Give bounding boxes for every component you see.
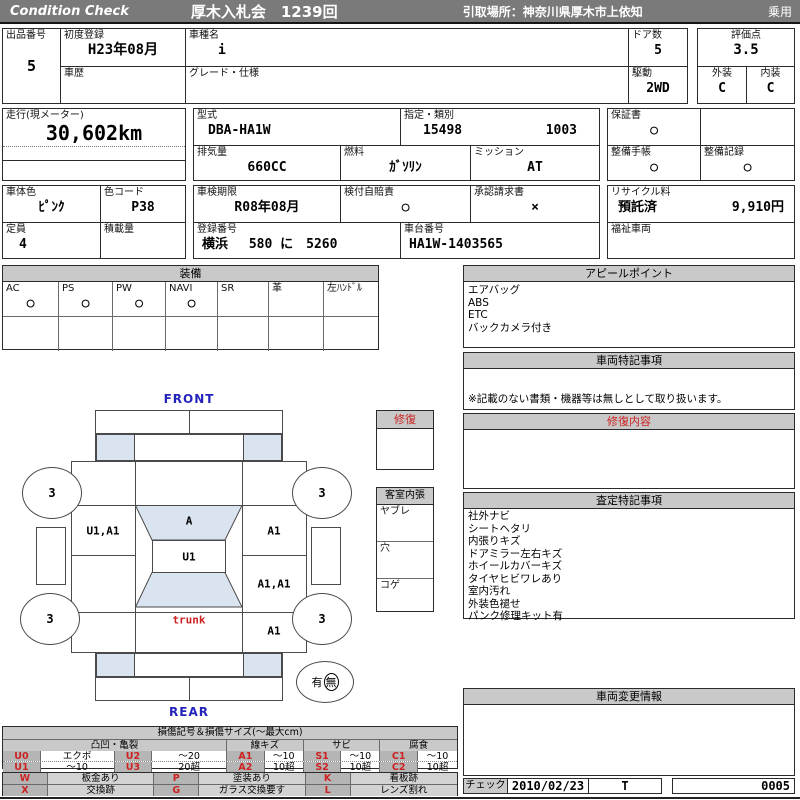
title-bar: Condition Check 厚木入札会 1239回 引取場所：神奈川県厚木市… [0, 0, 800, 24]
mileage-divider-dotted [3, 146, 185, 147]
check-date-value: 2010/02/23 [508, 779, 588, 793]
model-name-value: i [186, 43, 628, 58]
equipment-label: SR [218, 282, 268, 296]
exterior-grade-box: 外装 C [697, 66, 747, 104]
first-registration-label: 初度登録 [61, 29, 185, 43]
appeal-points-list: エアバッグABSETCバックカメラ付き [464, 282, 794, 334]
approval-box: 承認請求書 × [470, 185, 600, 223]
approval-label: 承認請求書 [471, 186, 599, 200]
zone-windshield: A [186, 515, 193, 528]
wheel-front-right: 3 [292, 467, 352, 519]
assessment-note-item: ドアミラー左右キズ [464, 548, 794, 561]
exterior-grade-value: C [698, 81, 746, 96]
interior-grade-value: C [747, 81, 794, 96]
assessment-note-item: パンク修理キット有 [464, 610, 794, 623]
brand-title: Condition Check [0, 4, 129, 19]
front-direction-label: FRONT [164, 392, 215, 406]
equipment-mark: ○ [166, 296, 217, 311]
lot-number-label: 出品番号 [3, 29, 60, 43]
equipment-empty-cell [59, 317, 113, 351]
model-name-box: 車種名 i [185, 28, 629, 67]
equipment-mark: ○ [113, 296, 165, 311]
type-class-label: 指定・類別 [401, 109, 599, 123]
drive-label: 駆動 [629, 67, 687, 81]
legend-code: C1 [380, 751, 418, 761]
type-class-box: 指定・類別 15498 1003 [400, 108, 600, 146]
assessment-notes-list: 社外ナビシートヘタリ内張りキズドアミラー左右キズホイールカバーキズタイヤヒビワレ… [464, 509, 794, 623]
registration-number-box: 登録番号 横浜 580 に 5260 [193, 222, 401, 259]
zone-left-front-door: U1,A1 [86, 525, 119, 538]
legend-code: U2 [115, 751, 153, 761]
equipment-cell-pw: PW○ [113, 282, 166, 316]
equipment-label: 革 [269, 282, 323, 296]
legend-size: ～20 [152, 751, 227, 761]
equipment-table: 装備 AC○ PS○ PW○ NAVI○ SR 革 左ﾊﾝﾄﾞﾙ [2, 265, 379, 350]
chassis-number-box: 車台番号 HA1W-1403565 [400, 222, 600, 259]
assessment-note-item: タイヤヒビワレあり [464, 573, 794, 586]
cabin-row-hole: 穴 [377, 542, 433, 579]
mileage-value: 30,602km [3, 123, 185, 143]
equipment-empty-cell [324, 317, 378, 351]
equipment-label: PW [113, 282, 165, 296]
body-color-value: ﾋﾟﾝｸ [3, 200, 100, 215]
rear-direction-label: REAR [169, 705, 209, 719]
legend-code: U1 [3, 762, 41, 772]
drive-box: 駆動 2WD [628, 66, 688, 104]
insurance-mark: ○ [341, 200, 470, 215]
work-code: L [306, 785, 351, 796]
warranty-label: 保証書 [608, 109, 700, 123]
vehicle-category: 乗用 [768, 3, 800, 20]
wheel-rear-right: 3 [292, 593, 352, 645]
legend-size: 10超 [341, 762, 380, 772]
exterior-grade-label: 外装 [698, 67, 746, 81]
first-registration-box: 初度登録 H23年08月 [60, 28, 186, 67]
type-number-value: 15498 [423, 123, 462, 138]
assessment-note-item: シートヘタリ [464, 523, 794, 536]
front-left-pillar-glass [96, 434, 135, 461]
right-side-step [311, 527, 341, 585]
assessment-notes-panel: 査定特記事項 社外ナビシートヘタリ内張りキズドアミラー左右キズホイールカバーキズ… [463, 492, 795, 619]
spare-no-mark-circled: 無 [324, 673, 339, 691]
equipment-cell-ac: AC○ [3, 282, 59, 316]
work-label: 交換跡 [48, 785, 155, 796]
zone-right-front-door: A1 [267, 525, 280, 538]
recycle-fee-value: 9,910円 [732, 200, 784, 215]
equipment-mark: ○ [3, 296, 58, 311]
assessment-notes-title: 査定特記事項 [464, 493, 794, 509]
appeal-point-item: ETC [464, 309, 794, 322]
model-code-box: 型式 DBA-HA1W [193, 108, 401, 146]
model-name-label: 車種名 [186, 29, 628, 43]
zone-trunk: trunk [172, 614, 205, 627]
welfare-box: 福祉車両 [607, 222, 795, 259]
check-inspector-cell: T [588, 778, 662, 794]
work-label: 看板跡 [351, 773, 458, 784]
spare-tire-indicator: 有無 [296, 661, 354, 703]
score-label: 評価点 [698, 29, 794, 43]
equipment-label: PS [59, 282, 112, 296]
check-date-cell: 2010/02/23 [507, 778, 589, 794]
chassis-number-value: HA1W-1403565 [401, 237, 599, 252]
repair-flag-title: 修復 [377, 411, 433, 429]
rear-left-pillar-glass [96, 653, 135, 677]
cabin-interior-box: 客室内張 ヤブレ 穴 コゲ [376, 487, 434, 612]
legend-group-scratch: 線キズ [227, 740, 304, 751]
pickup-location: 引取場所：神奈川県厚木市上依知 [463, 3, 643, 20]
recycle-status-value: 預託済 [618, 200, 657, 215]
assessment-note-item: 内張りキズ [464, 535, 794, 548]
rear-bumper-divider [189, 677, 190, 701]
capacity-box: 定員 4 [2, 222, 101, 259]
inspection-label: 車検期限 [194, 186, 340, 200]
work-codes-table: W 板金あり P 塗装あり K 看板跡 X 交換跡 G ガラス交換要す L レン… [2, 772, 458, 796]
score-value: 3.5 [698, 43, 794, 58]
rear-right-pillar-glass [243, 653, 282, 677]
appeal-points-title: アピールポイント [464, 266, 794, 282]
maintenance-book-label: 整備手帳 [608, 146, 700, 160]
equipment-cell-ps: PS○ [59, 282, 113, 316]
damage-legend-table: 損傷記号＆損傷サイズ(～最大cm) 凸凹・亀裂 線キズ サビ 腐食 U0 エクボ… [2, 726, 458, 769]
body-right-column-line [242, 461, 243, 653]
cabin-row-tear: ヤブレ [377, 505, 433, 542]
class-number-value: 1003 [546, 123, 577, 138]
work-code: X [3, 785, 48, 796]
cabin-interior-title: 客室内張 [377, 488, 433, 505]
cabin-row-label: コゲ [377, 579, 433, 593]
recycle-fee-label: リサイクル料 [608, 186, 794, 200]
zone-right-quarter: A1 [267, 625, 280, 638]
legend-group-corrosion: 腐食 [380, 740, 457, 751]
transmission-box: ミッション AT [470, 145, 600, 181]
equipment-empty-cell [113, 317, 166, 351]
body-color-label: 車体色 [3, 186, 100, 200]
fuel-label: 燃料 [341, 146, 470, 160]
lot-number-box: 出品番号 5 [2, 28, 61, 104]
equipment-cell-sr: SR [218, 282, 269, 316]
assessment-note-item: 社外ナビ [464, 510, 794, 523]
warranty-spare-cell [700, 108, 795, 146]
displacement-label: 排気量 [194, 146, 340, 160]
vehicle-notes-disclaimer: ※記載のない書類・機器等は無しとして取り扱います。 [464, 393, 794, 406]
registration-number-value: 横浜 580 に 5260 [194, 237, 400, 252]
assessment-note-item: 外装色褪せ [464, 598, 794, 611]
color-code-box: 色コード P38 [100, 185, 186, 223]
left-side-step [36, 527, 66, 585]
wheel-front-left: 3 [22, 467, 82, 519]
legend-group-rust: サビ [304, 740, 381, 751]
insurance-label: 検付自賠責 [341, 186, 470, 200]
maintenance-book-box: 整備手帳 ○ [607, 145, 701, 181]
load-label: 積載量 [101, 223, 185, 237]
first-registration-value: H23年08月 [61, 43, 185, 58]
vehicle-notes-title: 車両特記事項 [464, 353, 794, 369]
transmission-label: ミッション [471, 146, 599, 160]
repair-content-panel: 修復内容 [463, 413, 795, 489]
equipment-mark: ○ [59, 296, 112, 311]
model-code-value: DBA-HA1W [194, 123, 400, 138]
welfare-label: 福祉車両 [608, 223, 794, 237]
inspection-box: 車検期限 R08年08月 [193, 185, 341, 223]
doors-box: ドア数 5 [628, 28, 688, 67]
condition-check-sheet: Condition Check 厚木入札会 1239回 引取場所：神奈川県厚木市… [0, 0, 800, 800]
maintenance-record-mark: ○ [701, 160, 794, 175]
check-label-cell: チェック [463, 778, 508, 794]
cabin-row-label: ヤブレ [377, 505, 433, 519]
work-label: 板金あり [48, 773, 155, 784]
maintenance-record-box: 整備記録 ○ [700, 145, 795, 181]
drive-value: 2WD [629, 81, 687, 96]
assessment-note-item: 室内汚れ [464, 585, 794, 598]
doors-label: ドア数 [629, 29, 687, 43]
equipment-label: AC [3, 282, 58, 296]
zone-roof: U1 [182, 551, 195, 564]
body-color-box: 車体色 ﾋﾟﾝｸ [2, 185, 101, 223]
appeal-point-item: エアバッグ [464, 284, 794, 297]
fuel-value: ｶﾞｿﾘﾝ [341, 160, 470, 175]
repair-content-title: 修復内容 [464, 414, 794, 430]
legend-code: S1 [304, 751, 342, 761]
interior-grade-box: 内装 C [746, 66, 795, 104]
rear-glass [135, 572, 243, 608]
interior-grade-label: 内装 [747, 67, 794, 81]
repair-flag-box: 修復 [376, 410, 434, 470]
doors-value: 5 [629, 43, 687, 58]
legend-code: C2 [380, 762, 418, 772]
damage-legend-title: 損傷記号＆損傷サイズ(～最大cm) [3, 727, 457, 740]
vehicle-notes-panel: 車両特記事項 ※記載のない書類・機器等は無しとして取り扱います。 [463, 352, 795, 410]
zone-right-rear-door: A1,A1 [257, 578, 290, 591]
score-box: 評価点 3.5 [697, 28, 795, 67]
legend-size: ～10 [418, 751, 457, 761]
history-box: 車歴 [60, 66, 186, 104]
legend-size: ～10 [41, 762, 115, 772]
registration-number-label: 登録番号 [194, 223, 400, 237]
cabin-row-burn: コゲ [377, 579, 433, 612]
spare-yes-mark: 有 [312, 674, 323, 690]
legend-size: 10超 [265, 762, 304, 772]
cabin-row-label: 穴 [377, 542, 433, 556]
front-right-pillar-glass [243, 434, 282, 461]
equipment-title: 装備 [3, 266, 378, 282]
mileage-box: 走行(現メーター) 30,602km [2, 108, 186, 181]
equipment-cell-navi: NAVI○ [166, 282, 218, 316]
work-label: ガラス交換要す [199, 785, 306, 796]
recycle-fee-box: リサイクル料 預託済 9,910円 [607, 185, 795, 223]
grade-label: グレード・仕様 [186, 67, 628, 81]
load-box: 積載量 [100, 222, 186, 259]
work-code: W [3, 773, 48, 784]
equipment-cell-leather: 革 [269, 282, 324, 316]
legend-code: U0 [3, 751, 41, 761]
body-left-column-line [135, 461, 136, 653]
equipment-label: NAVI [166, 282, 217, 296]
insurance-box: 検付自賠責 ○ [340, 185, 471, 223]
work-code: K [306, 773, 351, 784]
maintenance-book-mark: ○ [608, 160, 700, 175]
legend-size: ～10 [265, 751, 304, 761]
auction-title: 厚木入札会 1239回 [129, 1, 338, 22]
equipment-empty-cell [218, 317, 269, 351]
grade-box: グレード・仕様 [185, 66, 629, 104]
work-label: 塗装あり [199, 773, 306, 784]
equipment-empty-cell [3, 317, 59, 351]
assessment-note-item: ホイールカバーキズ [464, 560, 794, 573]
transmission-value: AT [471, 160, 599, 175]
wheel-rear-left: 3 [20, 593, 80, 645]
front-bumper-divider [189, 410, 190, 434]
chassis-number-label: 車台番号 [401, 223, 599, 237]
color-code-value: P38 [101, 200, 185, 215]
legend-code: A2 [227, 762, 265, 772]
lot-number-value: 5 [3, 59, 60, 74]
mileage-divider-solid [3, 160, 185, 161]
legend-group-dents: 凸凹・亀裂 [3, 740, 227, 751]
legend-code: S2 [304, 762, 342, 772]
approval-mark: × [471, 200, 599, 215]
displacement-value: 660CC [194, 160, 340, 175]
displacement-box: 排気量 660CC [193, 145, 341, 181]
equipment-empty-cell [166, 317, 218, 351]
appeal-points-panel: アピールポイント エアバッグABSETCバックカメラ付き [463, 265, 795, 348]
vehicle-change-title: 車両変更情報 [464, 689, 794, 705]
page-bottom-rule [0, 797, 800, 799]
work-label: レンズ割れ [351, 785, 458, 796]
color-code-label: 色コード [101, 186, 185, 200]
legend-code: U3 [115, 762, 153, 772]
history-label: 車歴 [61, 67, 185, 81]
capacity-value: 4 [3, 237, 100, 252]
work-code: P [154, 773, 199, 784]
legend-size: ～10 [341, 751, 380, 761]
left-door-line [71, 555, 135, 556]
equipment-label: 左ﾊﾝﾄﾞﾙ [324, 282, 378, 296]
appeal-point-item: バックカメラ付き [464, 322, 794, 335]
warranty-mark: ○ [608, 123, 700, 138]
vehicle-change-panel: 車両変更情報 [463, 688, 795, 776]
legend-code: A1 [227, 751, 265, 761]
maintenance-record-label: 整備記録 [701, 146, 794, 160]
sheet-number-value: 0005 [673, 779, 794, 793]
legend-size: 10超 [418, 762, 457, 772]
inspection-value: R08年08月 [194, 200, 340, 215]
right-door-line [242, 555, 307, 556]
model-code-label: 型式 [194, 109, 400, 123]
equipment-empty-cell [269, 317, 324, 351]
legend-size: エクボ [41, 751, 115, 761]
fuel-box: 燃料 ｶﾞｿﾘﾝ [340, 145, 471, 181]
equipment-cell-lhd: 左ﾊﾝﾄﾞﾙ [324, 282, 378, 316]
work-code: G [154, 785, 199, 796]
sheet-number-cell: 0005 [672, 778, 795, 794]
capacity-label: 定員 [3, 223, 100, 237]
legend-size: 20超 [152, 762, 227, 772]
warranty-box: 保証書 ○ [607, 108, 701, 146]
check-inspector-value: T [589, 779, 661, 793]
appeal-point-item: ABS [464, 297, 794, 310]
